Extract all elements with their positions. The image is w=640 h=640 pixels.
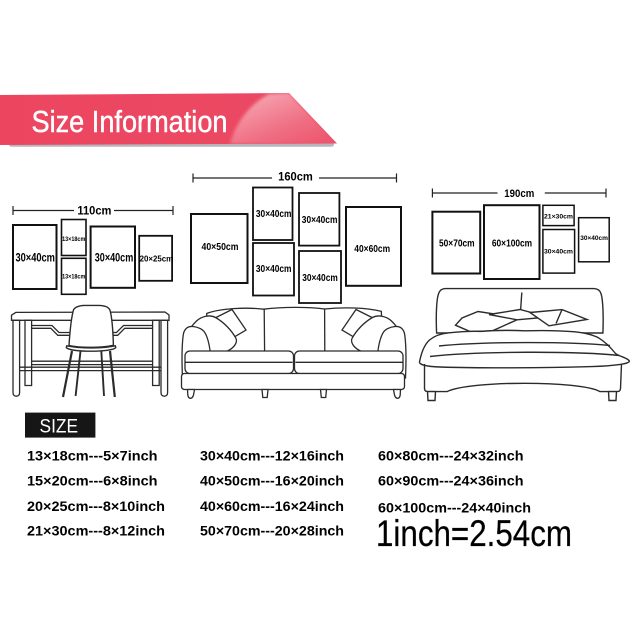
svg-text:60×80cm---24×32inch: 60×80cm---24×32inch — [378, 448, 524, 464]
svg-text:1inch=2.54cm: 1inch=2.54cm — [376, 513, 572, 554]
svg-text:15×20cm---6×8inch: 15×20cm---6×8inch — [27, 473, 158, 489]
svg-text:30×40cm: 30×40cm — [544, 249, 573, 256]
svg-text:30×40cm: 30×40cm — [256, 263, 292, 275]
svg-text:30×40cm: 30×40cm — [580, 235, 608, 242]
svg-text:21×30cm---8×12inch: 21×30cm---8×12inch — [27, 523, 165, 539]
svg-text:30×40cm: 30×40cm — [302, 214, 338, 226]
svg-text:20×25cm: 20×25cm — [140, 254, 174, 264]
svg-text:160cm: 160cm — [278, 172, 313, 184]
svg-text:13×18cm: 13×18cm — [62, 236, 86, 243]
svg-text:21×30cm: 21×30cm — [544, 214, 573, 221]
svg-text:60×90cm---24×36inch: 60×90cm---24×36inch — [378, 473, 524, 489]
svg-text:30×40cm: 30×40cm — [95, 252, 134, 264]
svg-text:20×25cm---8×10inch: 20×25cm---8×10inch — [27, 498, 165, 514]
svg-text:30×40cm: 30×40cm — [15, 252, 55, 264]
svg-text:13×18cm: 13×18cm — [62, 273, 86, 280]
svg-text:SIZE: SIZE — [40, 415, 79, 437]
svg-text:40×60cm---16×24inch: 40×60cm---16×24inch — [200, 498, 344, 514]
svg-text:30×40cm: 30×40cm — [256, 208, 292, 220]
svg-text:Size Information: Size Information — [32, 104, 228, 139]
svg-text:190cm: 190cm — [504, 188, 534, 200]
svg-text:50×70cm---20×28inch: 50×70cm---20×28inch — [200, 523, 344, 539]
svg-text:30×40cm---12×16inch: 30×40cm---12×16inch — [200, 448, 344, 464]
svg-text:40×60cm: 40×60cm — [354, 244, 390, 255]
svg-text:13×18cm---5×7inch: 13×18cm---5×7inch — [27, 448, 158, 464]
svg-text:110cm: 110cm — [77, 204, 111, 218]
svg-text:40×50cm---16×20inch: 40×50cm---16×20inch — [200, 473, 344, 489]
svg-text:60×100cm: 60×100cm — [492, 237, 532, 249]
svg-text:30×40cm: 30×40cm — [302, 272, 338, 284]
svg-text:50×70cm: 50×70cm — [439, 237, 475, 249]
svg-text:40×50cm: 40×50cm — [202, 242, 239, 253]
